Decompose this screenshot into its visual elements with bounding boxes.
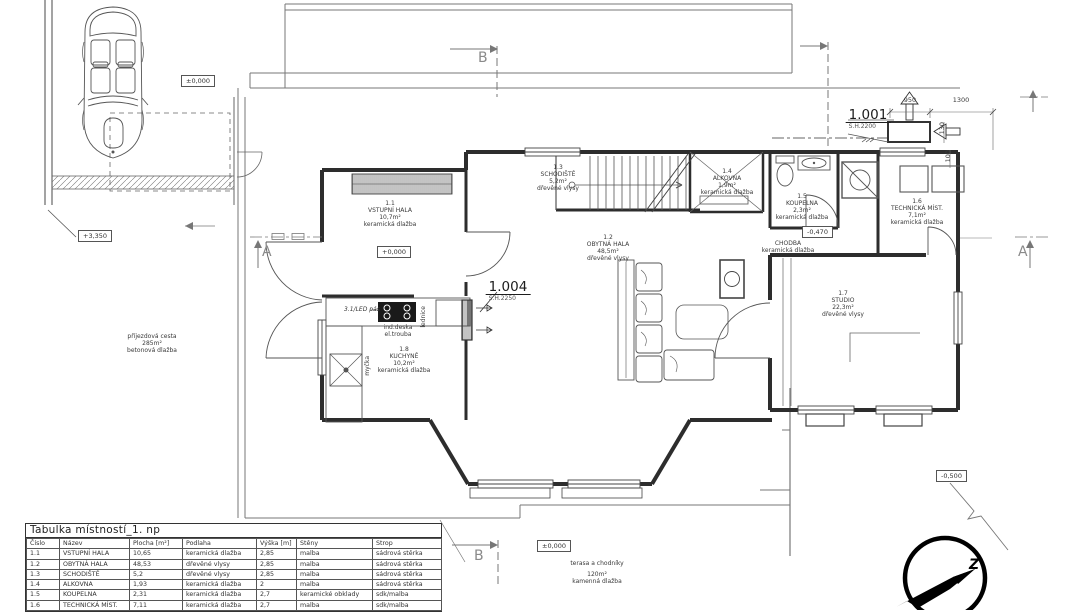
terrace-label: terasa a chodníky 120m² kamenná dlažba <box>570 560 623 585</box>
room-label-schodiste: 1.3SCHODIŠTĚ 5,2m²dřevěné vlysy <box>537 164 579 192</box>
cooktop-label: ind.deska el.trouba <box>384 324 413 338</box>
plot-lines <box>238 4 1008 562</box>
table-cell: keramické obklady <box>297 590 373 600</box>
opening-label-1004: 1.004 S.H.2250 <box>486 276 531 302</box>
table-row: 1.3SCHODIŠTĚ5,2dřevěné vlysy2,85malbasád… <box>27 569 442 579</box>
table-cell: 1.5 <box>27 590 60 600</box>
table-row: 1.6TECHNICKÁ MÍST.7,11keramická dlažba2,… <box>27 600 442 610</box>
elevation-yard: -0,500 <box>936 470 967 482</box>
room-label-studio: 1.7STUDIO 22,3m²dřevěné vlysy <box>822 290 864 318</box>
table-header-cell: Výška [m] <box>257 539 297 549</box>
table-cell: malba <box>297 569 373 579</box>
table-row: 1.2OBYTNÁ HALA48,53dřevěné vlysy2,85malb… <box>27 559 442 569</box>
table-header-cell: Název <box>60 539 130 549</box>
table-cell: malba <box>297 580 373 590</box>
table-cell: 2 <box>257 580 297 590</box>
table-cell: 10,65 <box>130 549 183 559</box>
table-cell: dřevěné vlysy <box>183 559 257 569</box>
fireplace <box>720 260 744 298</box>
room-table: Tabulka místností_1. np ČísloNázevPlocha… <box>25 523 442 612</box>
table-cell: malba <box>297 600 373 610</box>
driveway-label: příjezdová cesta 285m² betonová dlažba <box>127 333 177 354</box>
table-cell: sádrová stěrka <box>373 559 442 569</box>
room-table-grid: ČísloNázevPlocha [m²]PodlahaVýška [m]Stě… <box>26 538 442 611</box>
bathroom-fixtures <box>776 156 878 198</box>
table-header-cell: Podlaha <box>183 539 257 549</box>
dim-1300: 1300 <box>953 97 970 104</box>
elevation-hall: +0,000 <box>377 246 411 258</box>
table-cell: sádrová stěrka <box>373 580 442 590</box>
table-header-row: ČísloNázevPlocha [m²]PodlahaVýška [m]Stě… <box>27 539 442 549</box>
studio-furniture <box>783 258 920 406</box>
sofa <box>618 260 728 382</box>
table-cell: 48,53 <box>130 559 183 569</box>
table-cell: 1.2 <box>27 559 60 569</box>
room-label-vstupni-hala: 1.1VSTUPNÍ HALA 10,7m²keramická dlažba <box>364 200 417 228</box>
table-cell: 5,2 <box>130 569 183 579</box>
table-cell: TECHNICKÁ MÍST. <box>60 600 130 610</box>
section-letter-b-top: B <box>478 50 488 66</box>
table-cell: KOUPELNA <box>60 590 130 600</box>
dim-130: 130 <box>938 122 946 134</box>
tech-fixtures <box>900 166 964 192</box>
table-cell: malba <box>297 549 373 559</box>
dishwasher-label: myčka <box>364 356 371 376</box>
room-label-alkovna: 1.4ALKOVNA 1,9m²keramická dlažba <box>701 168 754 196</box>
table-cell: 2,85 <box>257 549 297 559</box>
elevation-garage: ±0,000 <box>181 75 215 87</box>
table-cell: 2,31 <box>130 590 183 600</box>
room-label-obytna-hala: 1.2OBYTNÁ HALA 48,5m²dřevěné vlysy <box>587 234 630 262</box>
plan-linework <box>0 0 1066 610</box>
table-cell: 1.3 <box>27 569 60 579</box>
table-header-cell: Plocha [m²] <box>130 539 183 549</box>
stairs <box>569 154 695 212</box>
table-cell: 2,7 <box>257 590 297 600</box>
closet-hatch <box>352 174 452 194</box>
dim-100: 100 <box>944 150 952 162</box>
table-cell: malba <box>297 559 373 569</box>
table-header-cell: Číslo <box>27 539 60 549</box>
table-cell: 7,11 <box>130 600 183 610</box>
room-label-technicka: 1.6TECHNICKÁ MÍST. 7,1m²keramická dlažba <box>891 198 944 226</box>
table-cell: 1,93 <box>130 580 183 590</box>
table-cell: ALKOVNA <box>60 580 130 590</box>
floor-plan-drawing: +3,350 ±0,000 +0,000 -0,470 -0,500 ±0,00… <box>0 0 1066 610</box>
table-cell: SCHODIŠTĚ <box>60 569 130 579</box>
table-cell: 2,7 <box>257 600 297 610</box>
table-cell: keramická dlažba <box>183 580 257 590</box>
table-cell: OBYTNÁ HALA <box>60 559 130 569</box>
section-letter-a-left: A <box>262 244 272 260</box>
table-cell: VSTUPNÍ HALA <box>60 549 130 559</box>
table-row: 1.4ALKOVNA1,93keramická dlažba2malbasádr… <box>27 580 442 590</box>
opening-label-1001: 1.001 S.H.2200 <box>846 104 891 130</box>
room-label-kuchyne: 1.8KUCHYNĚ 10,2m²keramická dlažba <box>378 346 431 374</box>
car-drawing <box>78 7 148 158</box>
table-cell: sádrová stěrka <box>373 569 442 579</box>
section-letter-b-bottom: B <box>474 548 484 564</box>
fridge-label: lednice <box>420 306 427 328</box>
elevation-chodba: -0,470 <box>802 226 833 238</box>
table-cell: dřevěné vlysy <box>183 569 257 579</box>
table-cell: 1.6 <box>27 600 60 610</box>
room-table-title: Tabulka místností_1. np <box>26 524 441 538</box>
table-cell: sdk/malba <box>373 590 442 600</box>
compass-icon <box>896 538 985 610</box>
table-cell: 1.1 <box>27 549 60 559</box>
table-cell: 2,85 <box>257 559 297 569</box>
table-cell: keramická dlažba <box>183 549 257 559</box>
room-label-chodba: CHODBA keramická dlažba <box>762 240 815 254</box>
dim-950: 950 <box>904 97 916 104</box>
table-cell: keramická dlažba <box>183 600 257 610</box>
table-header-cell: Strop <box>373 539 442 549</box>
table-cell: sdk/malba <box>373 600 442 610</box>
table-header-cell: Stěny <box>297 539 373 549</box>
table-cell: sádrová stěrka <box>373 549 442 559</box>
table-cell: keramická dlažba <box>183 590 257 600</box>
elevation-terrace: ±0,000 <box>537 540 571 552</box>
table-cell: 1.4 <box>27 580 60 590</box>
house-walls <box>322 152 958 484</box>
led-strip-label: 3.1/LED pás <box>344 306 380 313</box>
elevation-driveway-top: +3,350 <box>78 230 112 242</box>
compass-north-label: Z <box>969 557 979 573</box>
section-letter-a-right: A <box>1018 244 1028 260</box>
table-cell: 2,85 <box>257 569 297 579</box>
table-row: 1.1VSTUPNÍ HALA10,65keramická dlažba2,85… <box>27 549 442 559</box>
table-row: 1.5KOUPELNA2,31keramická dlažba2,7kerami… <box>27 590 442 600</box>
room-label-koupelna: 1.5KOUPELNA 2,3m²keramická dlažba <box>776 193 829 221</box>
garage-area <box>45 0 262 205</box>
